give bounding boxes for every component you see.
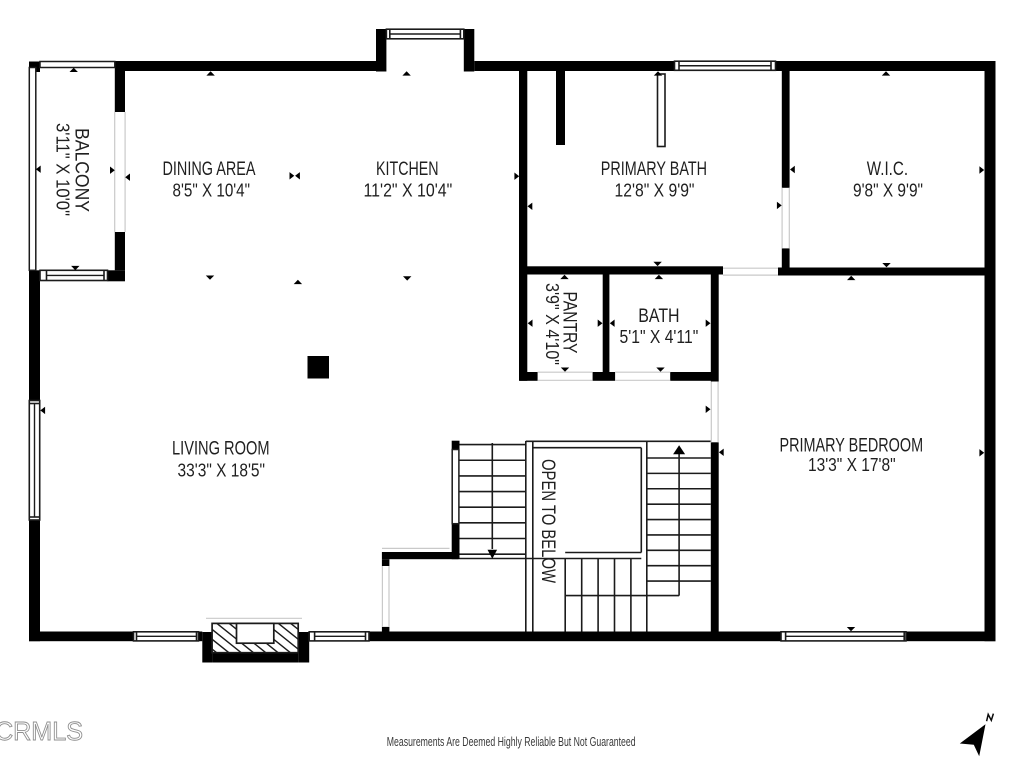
svg-text:5'1" X 4'11": 5'1" X 4'11" (620, 327, 699, 347)
svg-text:8'5" X 10'4": 8'5" X 10'4" (173, 180, 251, 200)
svg-text:BATH: BATH (638, 306, 679, 327)
svg-text:OPEN TO BELOW: OPEN TO BELOW (537, 459, 558, 583)
svg-text:LIVING ROOM: LIVING ROOM (172, 439, 270, 460)
svg-text:12'8" X 9'9": 12'8" X 9'9" (615, 180, 695, 200)
svg-text:11'2" X 10'4": 11'2" X 10'4" (364, 180, 453, 200)
svg-text:KITCHEN: KITCHEN (376, 159, 439, 180)
svg-text:9'8" X 9'9": 9'8" X 9'9" (853, 180, 923, 200)
svg-text:PRIMARY BEDROOM: PRIMARY BEDROOM (780, 436, 924, 457)
svg-text:DINING AREA: DINING AREA (163, 159, 256, 180)
svg-text:W.I.C.: W.I.C. (867, 159, 908, 180)
svg-text:3'9" X 4'10": 3'9" X 4'10" (542, 283, 562, 365)
svg-text:Measurements Are Deemed Highly: Measurements Are Deemed Highly Reliable … (387, 734, 636, 749)
svg-text:33'3" X 18'5": 33'3" X 18'5" (178, 461, 266, 481)
svg-text:PRIMARY BATH: PRIMARY BATH (601, 159, 707, 180)
svg-text:3'11" X 10'0": 3'11" X 10'0" (53, 123, 73, 216)
svg-text:13'3" X 17'8": 13'3" X 17'8" (808, 455, 896, 475)
svg-text:CRMLS: CRMLS (0, 716, 83, 746)
